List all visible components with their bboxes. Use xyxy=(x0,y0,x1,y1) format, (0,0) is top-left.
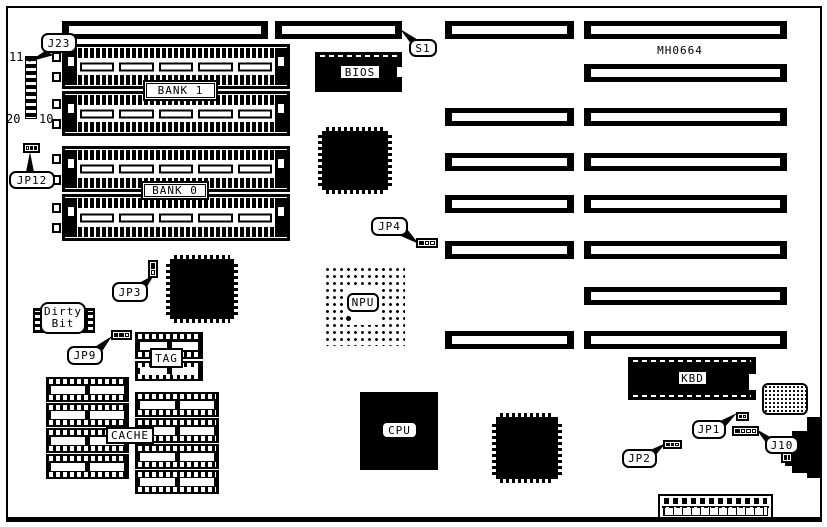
power-connector xyxy=(658,494,773,519)
motherboard-diagram: S1 MH0664 J23 11 20 10 JP12 BANK 1 xyxy=(0,0,827,527)
pin-label-20: 20 xyxy=(6,112,22,125)
cache-chip xyxy=(135,470,219,494)
cache-chip xyxy=(135,392,219,417)
jp1-callout: JP1 xyxy=(692,420,726,439)
top-slot-b xyxy=(275,21,402,39)
jp12-label: JP12 xyxy=(17,174,48,187)
npu-text: NPU xyxy=(352,296,375,309)
chipset-qfp-1 xyxy=(318,127,392,194)
isa-slot-long xyxy=(584,108,787,126)
isa-slot-short xyxy=(445,331,574,349)
bank0-text: BANK 0 xyxy=(152,184,198,197)
tag-label: TAG xyxy=(150,348,183,368)
bios-text: BIOS xyxy=(345,66,376,79)
cpu-label: CPU xyxy=(381,421,418,439)
jp12-jumper xyxy=(23,143,40,153)
chipset-qfp-2 xyxy=(166,255,238,323)
aux-connector-pad xyxy=(762,383,808,415)
dirty-bit-line2: Bit xyxy=(52,318,75,330)
cache-text: CACHE xyxy=(111,429,149,442)
isa-slot-long xyxy=(584,153,787,171)
bios-label: BIOS xyxy=(339,64,381,80)
cache-chip xyxy=(46,377,129,402)
npu-label: NPU xyxy=(347,293,379,312)
isa-slot-short xyxy=(445,195,574,213)
bank-end-pin xyxy=(52,99,61,109)
board-code: MH0664 xyxy=(648,44,712,58)
bank-end-pin xyxy=(52,72,61,82)
cache-label: CACHE xyxy=(106,427,154,444)
pin-label-11: 11 xyxy=(9,50,25,63)
j23-header xyxy=(25,56,37,119)
j10-header xyxy=(732,426,759,436)
kbd-text: KBD xyxy=(681,372,704,385)
jp2-callout: JP2 xyxy=(622,449,657,468)
bank-end-pin xyxy=(52,203,61,213)
simm-bank0-socket-b xyxy=(62,194,290,241)
jp3-jumper xyxy=(148,260,158,278)
s1-callout: S1 xyxy=(409,39,437,57)
s1-label: S1 xyxy=(415,42,430,55)
j10-callout: J10 xyxy=(765,436,799,454)
isa-slot-short xyxy=(445,21,574,39)
jp2-jumper xyxy=(663,440,682,449)
isa-slot-long xyxy=(584,21,787,39)
tag-text: TAG xyxy=(155,352,178,365)
cache-chip xyxy=(46,454,129,479)
bios-notch xyxy=(397,67,402,77)
top-slot-a xyxy=(62,21,268,39)
cache-chip xyxy=(135,444,219,469)
jp9-callout: JP9 xyxy=(67,346,103,365)
isa-slot-short xyxy=(445,153,574,171)
cache-chip xyxy=(46,403,129,427)
jp12-callout: JP12 xyxy=(9,171,55,189)
kbd-label: KBD xyxy=(677,370,708,386)
chipset-qfp-3 xyxy=(492,413,562,483)
npu-pin1-dot xyxy=(346,316,351,321)
dirty-bit-label: Dirty Bit xyxy=(40,302,86,334)
j10-label: J10 xyxy=(771,439,794,452)
jp2-label: JP2 xyxy=(628,452,651,465)
j23-label: J23 xyxy=(48,37,71,50)
bank1-label: BANK 1 xyxy=(143,80,218,101)
bank0-label: BANK 0 xyxy=(141,181,209,200)
isa-slot-short xyxy=(445,241,574,259)
kbd-notch xyxy=(749,374,756,390)
jp4-jumper xyxy=(416,238,438,248)
isa-slot-long xyxy=(584,287,787,305)
isa-slot-long xyxy=(584,195,787,213)
isa-slot-long xyxy=(584,64,787,82)
isa-slot-long xyxy=(584,241,787,259)
keyboard-din-connector xyxy=(807,417,822,478)
j23-callout: J23 xyxy=(41,33,77,53)
bank-end-pin xyxy=(52,154,61,164)
cpu-text: CPU xyxy=(388,424,411,437)
jp3-label: JP3 xyxy=(119,286,142,299)
jp9-label: JP9 xyxy=(74,349,97,362)
pin-label-10: 10 xyxy=(39,112,55,125)
bank1-text: BANK 1 xyxy=(158,84,204,97)
jp4-label: JP4 xyxy=(378,220,401,233)
jp3-callout: JP3 xyxy=(112,282,148,302)
isa-slot-long xyxy=(584,331,787,349)
bank-end-pin xyxy=(52,52,61,62)
bank-end-pin xyxy=(52,223,61,233)
isa-slot-short xyxy=(445,108,574,126)
jp1-jumper xyxy=(736,412,749,421)
jp4-callout: JP4 xyxy=(371,217,408,236)
jp9-jumper xyxy=(111,330,132,340)
jp1-label: JP1 xyxy=(698,423,721,436)
